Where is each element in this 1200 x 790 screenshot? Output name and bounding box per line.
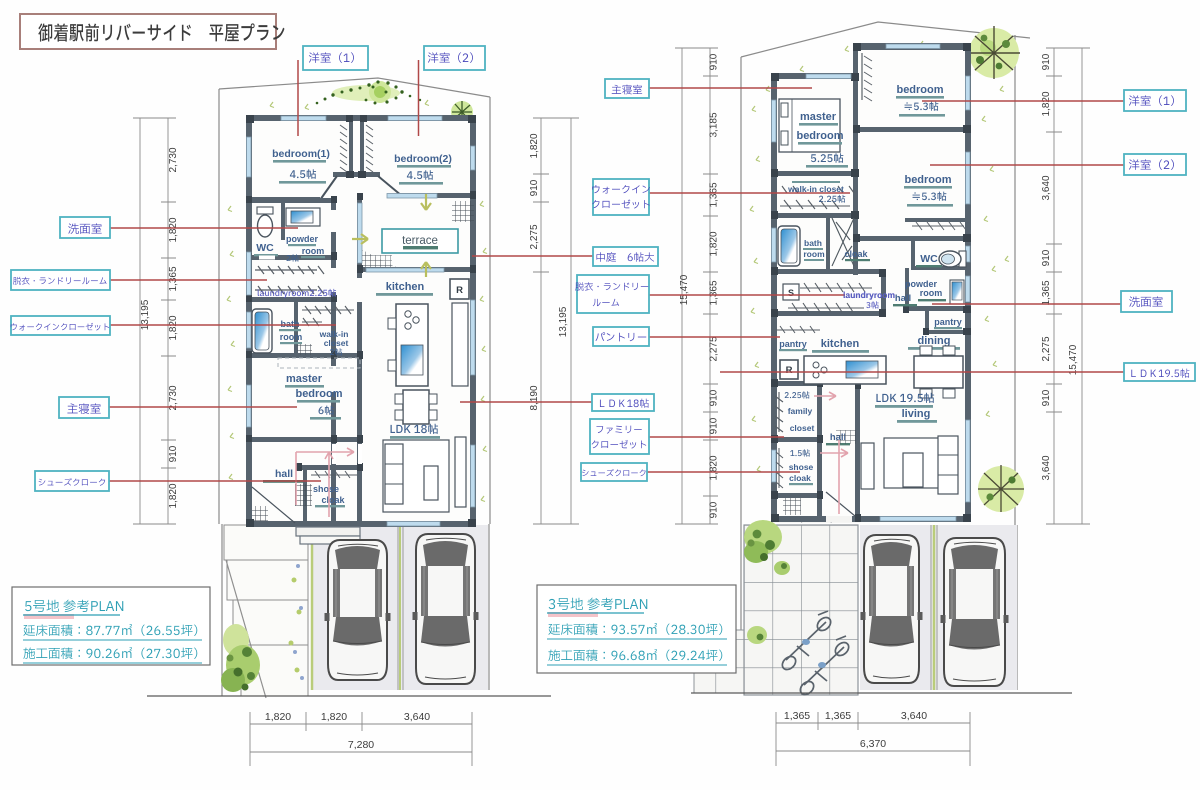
svg-text:910: 910 [168, 445, 179, 462]
svg-text:room: room [302, 246, 325, 256]
svg-text:kitchen: kitchen [821, 338, 860, 350]
svg-text:bedroom: bedroom [796, 130, 843, 142]
svg-text:1,365: 1,365 [709, 182, 720, 207]
svg-text:shose: shose [313, 484, 339, 494]
svg-text:910: 910 [1041, 249, 1052, 266]
svg-text:hall: hall [275, 468, 293, 480]
svg-text:room: room [280, 332, 303, 342]
svg-text:room: room [803, 249, 825, 259]
svg-text:910: 910 [529, 179, 540, 196]
svg-text:1,365: 1,365 [1041, 280, 1052, 305]
svg-text:hall: hall [895, 293, 911, 304]
svg-text:6,370: 6,370 [860, 738, 886, 750]
svg-text:2,275: 2,275 [1041, 336, 1052, 361]
svg-text:bedroom(2): bedroom(2) [394, 153, 452, 165]
svg-text:2,275: 2,275 [529, 224, 540, 249]
svg-text:7,280: 7,280 [348, 739, 374, 751]
svg-text:3,640: 3,640 [404, 711, 430, 723]
svg-text:S: S [788, 288, 794, 298]
svg-text:910: 910 [709, 417, 720, 434]
svg-text:cloak: cloak [844, 249, 868, 259]
svg-text:1,820: 1,820 [168, 315, 179, 340]
svg-text:2,275: 2,275 [709, 336, 720, 361]
svg-text:bedroom(1): bedroom(1) [272, 148, 330, 160]
svg-text:bedroom: bedroom [896, 84, 943, 96]
svg-text:1,365: 1,365 [825, 710, 851, 722]
svg-text:910: 910 [709, 389, 720, 406]
svg-text:1,820: 1,820 [1041, 91, 1052, 116]
svg-text:3,185: 3,185 [709, 112, 720, 137]
svg-text:laundryroom: laundryroom [843, 290, 895, 300]
svg-text:kitchen: kitchen [386, 281, 425, 293]
svg-text:master: master [286, 373, 323, 385]
svg-text:910: 910 [709, 53, 720, 70]
svg-text:terrace: terrace [402, 235, 438, 247]
svg-text:master: master [800, 111, 837, 123]
svg-text:shose: shose [789, 462, 814, 472]
svg-text:family: family [788, 406, 813, 416]
svg-text:3,640: 3,640 [1041, 455, 1052, 480]
svg-text:1,820: 1,820 [709, 455, 720, 480]
svg-text:8,190: 8,190 [529, 385, 540, 410]
svg-text:910: 910 [709, 501, 720, 518]
svg-text:1,820: 1,820 [168, 483, 179, 508]
svg-text:living: living [902, 408, 931, 420]
svg-text:cloak: cloak [789, 473, 811, 483]
svg-text:2,730: 2,730 [168, 147, 179, 172]
svg-text:bath: bath [804, 238, 822, 248]
svg-text:1,365: 1,365 [784, 710, 810, 722]
svg-text:1,820: 1,820 [321, 711, 347, 723]
svg-text:bedroom: bedroom [295, 388, 342, 400]
svg-text:910: 910 [1041, 53, 1052, 70]
svg-text:cloak: cloak [321, 495, 345, 505]
svg-text:WC: WC [256, 242, 274, 254]
svg-text:15,470: 15,470 [679, 274, 690, 305]
svg-text:pantry: pantry [934, 317, 962, 327]
svg-text:3,640: 3,640 [901, 710, 927, 722]
svg-text:1,820: 1,820 [265, 711, 291, 723]
svg-text:room: room [920, 288, 943, 298]
svg-text:dining: dining [918, 335, 951, 347]
svg-text:13,195: 13,195 [558, 306, 569, 337]
svg-text:1,820: 1,820 [709, 231, 720, 256]
svg-text:1,365: 1,365 [168, 266, 179, 291]
svg-text:R: R [786, 365, 793, 376]
svg-text:WC: WC [920, 253, 938, 265]
svg-text:1,820: 1,820 [168, 217, 179, 242]
svg-text:15,470: 15,470 [1068, 344, 1079, 375]
svg-text:powder: powder [286, 234, 318, 244]
svg-text:1,365: 1,365 [709, 280, 720, 305]
svg-text:3,640: 3,640 [1041, 175, 1052, 200]
svg-text:1,820: 1,820 [529, 133, 540, 158]
svg-text:910: 910 [1041, 389, 1052, 406]
svg-text:closet: closet [790, 423, 815, 433]
svg-text:closet: closet [324, 338, 349, 348]
svg-text:bedroom: bedroom [904, 174, 951, 186]
svg-text:R: R [456, 285, 463, 296]
svg-text:bath: bath [281, 319, 300, 329]
svg-text:pantry: pantry [779, 339, 807, 349]
